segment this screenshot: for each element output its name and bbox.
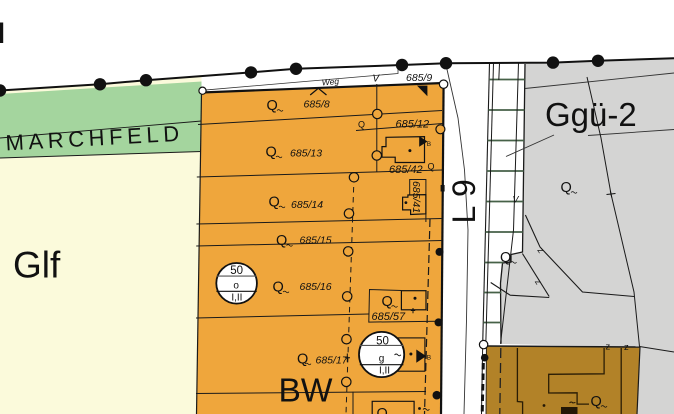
svg-text:685/9: 685/9 bbox=[406, 72, 432, 84]
svg-text:685/16: 685/16 bbox=[300, 281, 332, 293]
svg-text:z: z bbox=[624, 342, 629, 353]
svg-text:Q: Q bbox=[500, 250, 511, 266]
svg-text:Q: Q bbox=[269, 195, 280, 211]
svg-text:Ggü-2: Ggü-2 bbox=[545, 96, 637, 133]
svg-text:685/15: 685/15 bbox=[300, 235, 332, 247]
svg-text:I,II: I,II bbox=[231, 293, 242, 304]
svg-text:B: B bbox=[427, 141, 431, 148]
svg-text:B: B bbox=[427, 355, 431, 362]
svg-text:Q: Q bbox=[382, 294, 393, 310]
svg-text:Q: Q bbox=[266, 145, 277, 161]
svg-text:Q: Q bbox=[267, 98, 278, 114]
svg-text:Q: Q bbox=[276, 233, 287, 249]
svg-text:Weg: Weg bbox=[321, 76, 339, 87]
svg-text:o: o bbox=[233, 281, 239, 292]
svg-text:50: 50 bbox=[230, 265, 243, 277]
svg-text:Q: Q bbox=[561, 180, 572, 196]
svg-text:685/41: 685/41 bbox=[410, 181, 422, 213]
svg-text:Q: Q bbox=[297, 352, 308, 368]
svg-text:685/8: 685/8 bbox=[304, 99, 330, 111]
svg-text:Q: Q bbox=[428, 162, 435, 172]
svg-text:Q: Q bbox=[377, 406, 388, 414]
svg-text:685/12: 685/12 bbox=[396, 119, 430, 131]
svg-text:z: z bbox=[606, 342, 611, 353]
svg-text:685/13: 685/13 bbox=[290, 148, 322, 160]
svg-text:50: 50 bbox=[376, 335, 389, 347]
svg-text:V: V bbox=[513, 195, 520, 205]
svg-text:L 9: L 9 bbox=[446, 179, 482, 224]
svg-text:I,II: I,II bbox=[379, 365, 390, 376]
svg-text:Glf: Glf bbox=[13, 245, 61, 286]
svg-text:Q: Q bbox=[273, 280, 284, 296]
svg-text:685/14: 685/14 bbox=[291, 199, 323, 211]
svg-text:g: g bbox=[379, 354, 385, 365]
svg-text:Q: Q bbox=[591, 394, 602, 410]
svg-text:685/57: 685/57 bbox=[372, 311, 407, 323]
svg-text:BW: BW bbox=[279, 373, 333, 410]
svg-text:685/42: 685/42 bbox=[389, 164, 423, 176]
svg-text:685/17: 685/17 bbox=[316, 355, 349, 367]
svg-text:Q: Q bbox=[358, 120, 365, 130]
